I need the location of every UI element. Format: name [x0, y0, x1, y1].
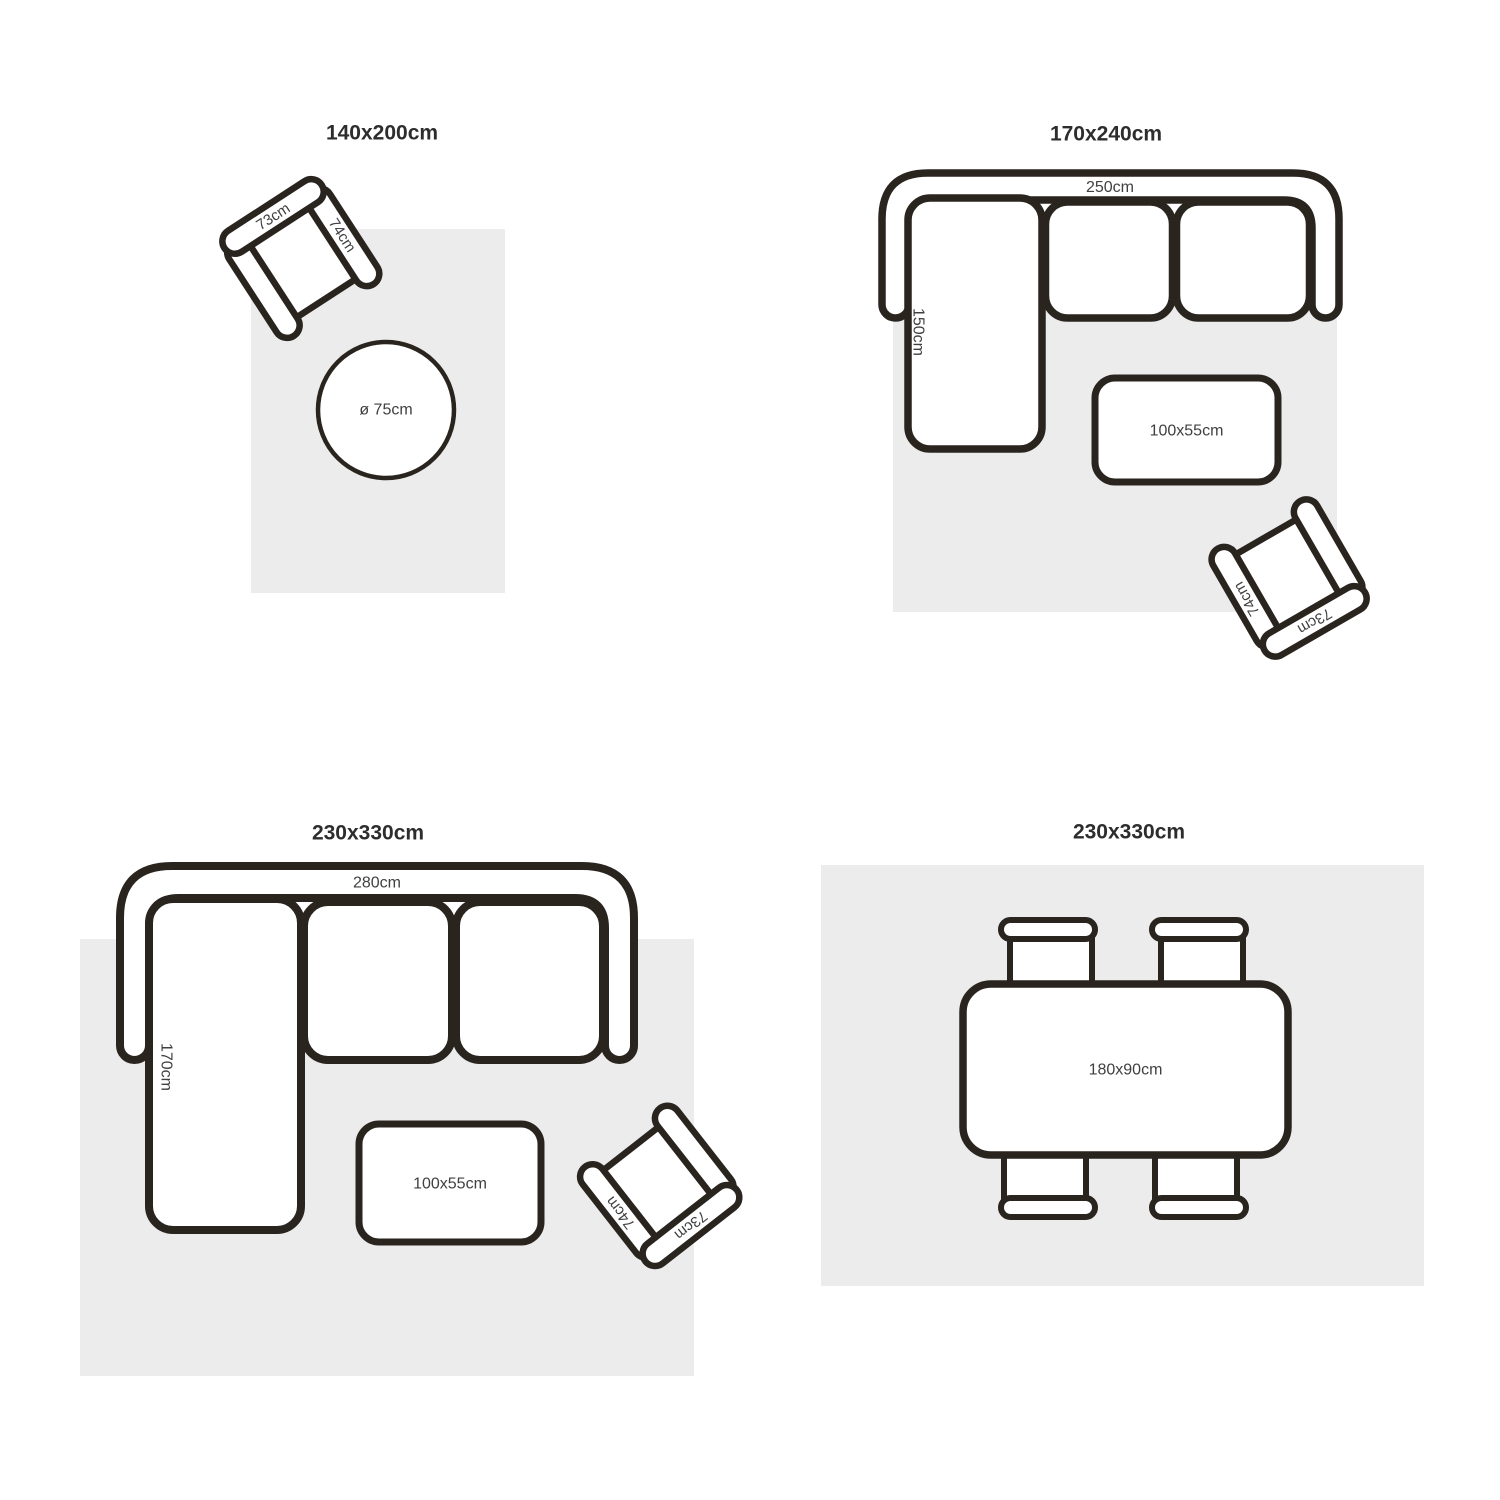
sofa-chaise-dimension: 150cm — [910, 308, 927, 356]
panel-230x330-dining: 230x330cm 180x90cm — [821, 821, 1424, 1287]
coffee-table-dimension: 100x55cm — [1150, 423, 1224, 440]
panel-title: 230x330cm — [312, 822, 424, 845]
panel-title: 170x240cm — [1050, 123, 1162, 146]
sofa-cushion — [1177, 202, 1310, 318]
sofa-width-dimension: 280cm — [353, 875, 401, 892]
panel-140x200: 140x200cm 73cm 74cm ø 75cm — [216, 122, 505, 594]
panel-170x240: 170x240cm 250cm 150cm 100x55cm 73cm 74cm — [882, 123, 1373, 663]
sofa-cushion — [1046, 202, 1173, 318]
size-guide-diagram: 140x200cm 73cm 74cm ø 75cm 170x240cm 250… — [0, 0, 1500, 1500]
sofa-cushion — [304, 902, 452, 1060]
panel-230x330-living: 230x330cm 280cm 170cm 100x55cm 73cm 74cm — [80, 822, 746, 1377]
rug-size-guide: 140x200cm 73cm 74cm ø 75cm 170x240cm 250… — [0, 0, 1500, 1500]
round-table-dimension: ø 75cm — [359, 402, 412, 419]
sofa-cushion — [456, 902, 603, 1060]
panel-title: 230x330cm — [1073, 821, 1185, 844]
coffee-table-dimension: 100x55cm — [413, 1176, 487, 1193]
sofa-width-dimension: 250cm — [1086, 179, 1134, 196]
sofa-chaise-dimension: 170cm — [158, 1043, 175, 1091]
panel-title: 140x200cm — [326, 122, 438, 145]
dining-table-dimension: 180x90cm — [1089, 1062, 1163, 1079]
sofa-chaise — [908, 198, 1042, 449]
